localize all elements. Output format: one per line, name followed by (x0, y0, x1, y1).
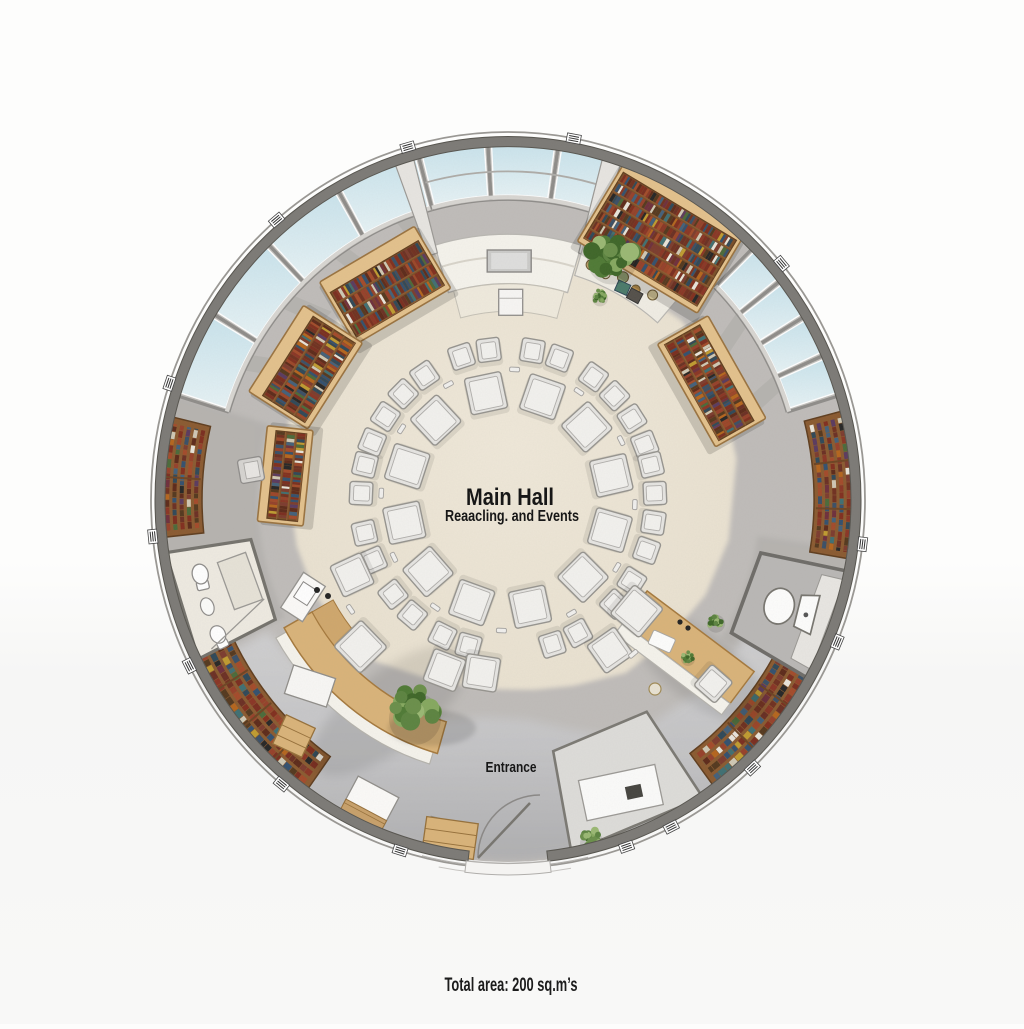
svg-text:Entrance: Entrance (486, 759, 537, 776)
svg-text:Main Hall: Main Hall (466, 484, 554, 511)
svg-text:Reaacling. and Events: Reaacling. and Events (445, 508, 579, 525)
svg-text:Total area: 200 sq.m’s: Total area: 200 sq.m’s (445, 975, 578, 996)
